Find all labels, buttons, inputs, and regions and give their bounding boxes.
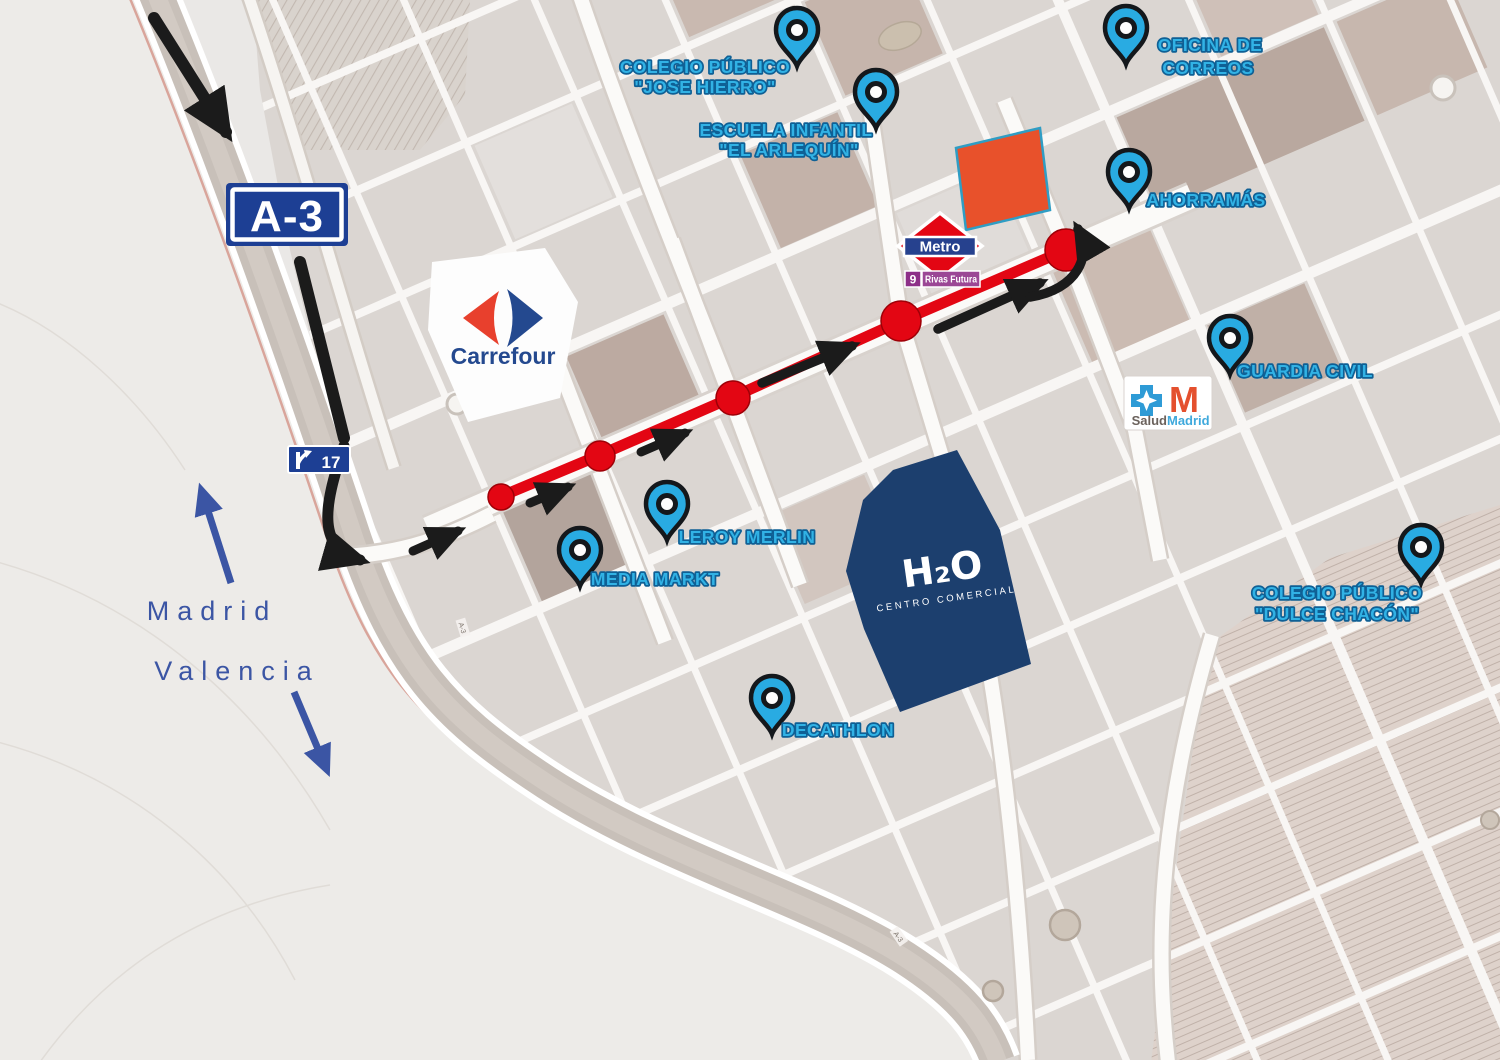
a3-sign-text: A-3 <box>250 192 324 241</box>
label-leroy-merlin: LEROY MERLIN <box>679 527 816 547</box>
madrid-wordmark: Madrid <box>1167 413 1210 428</box>
a3-highway-sign: A-3 <box>226 183 348 246</box>
madrid-label: Madrid <box>147 596 278 626</box>
label-guardia-civil: GUARDIA CIVIL <box>1237 361 1373 381</box>
label-decathlon: DECATHLON <box>782 720 894 740</box>
label-dulce-chacon-2: "DULCE CHACÓN" <box>1255 603 1419 624</box>
label-ahorramas: AHORRAMÁS <box>1146 189 1265 210</box>
label-jose-hierro-2: "JOSE HIERRO" <box>634 77 775 97</box>
label-el-arlequin-2: "EL ARLEQUÍN" <box>719 139 858 160</box>
metro-wordmark: Metro <box>920 239 961 256</box>
label-media-markt: MEDIA MARKT <box>591 569 719 589</box>
salud-wordmark: Salud <box>1132 413 1167 428</box>
label-dulce-chacon-1: COLEGIO PÚBLICO <box>1252 582 1422 603</box>
exit-number: 17 <box>322 453 341 472</box>
map-canvas: A-3 A-3 Madrid Valencia <box>0 0 1500 1060</box>
salud-madrid-logo: M Salud Madrid <box>1124 376 1212 430</box>
label-jose-hierro-1: COLEGIO PÚBLICO <box>620 56 790 77</box>
valencia-label: Valencia <box>154 656 320 686</box>
label-correos-2: CORREOS <box>1162 58 1253 78</box>
label-el-arlequin-1: ESCUELA INFANTIL <box>700 120 873 140</box>
exit-17-sign: 17 <box>288 446 350 473</box>
rivas-futura-access-map: A-3 A-3 Madrid Valencia <box>0 0 1500 1060</box>
carrefour-wordmark: Carrefour <box>451 343 556 369</box>
station-name: Rivas Futura <box>925 275 977 286</box>
line-9-number: 9 <box>910 273 917 287</box>
label-correos-1: OFICINA DE <box>1158 35 1262 55</box>
